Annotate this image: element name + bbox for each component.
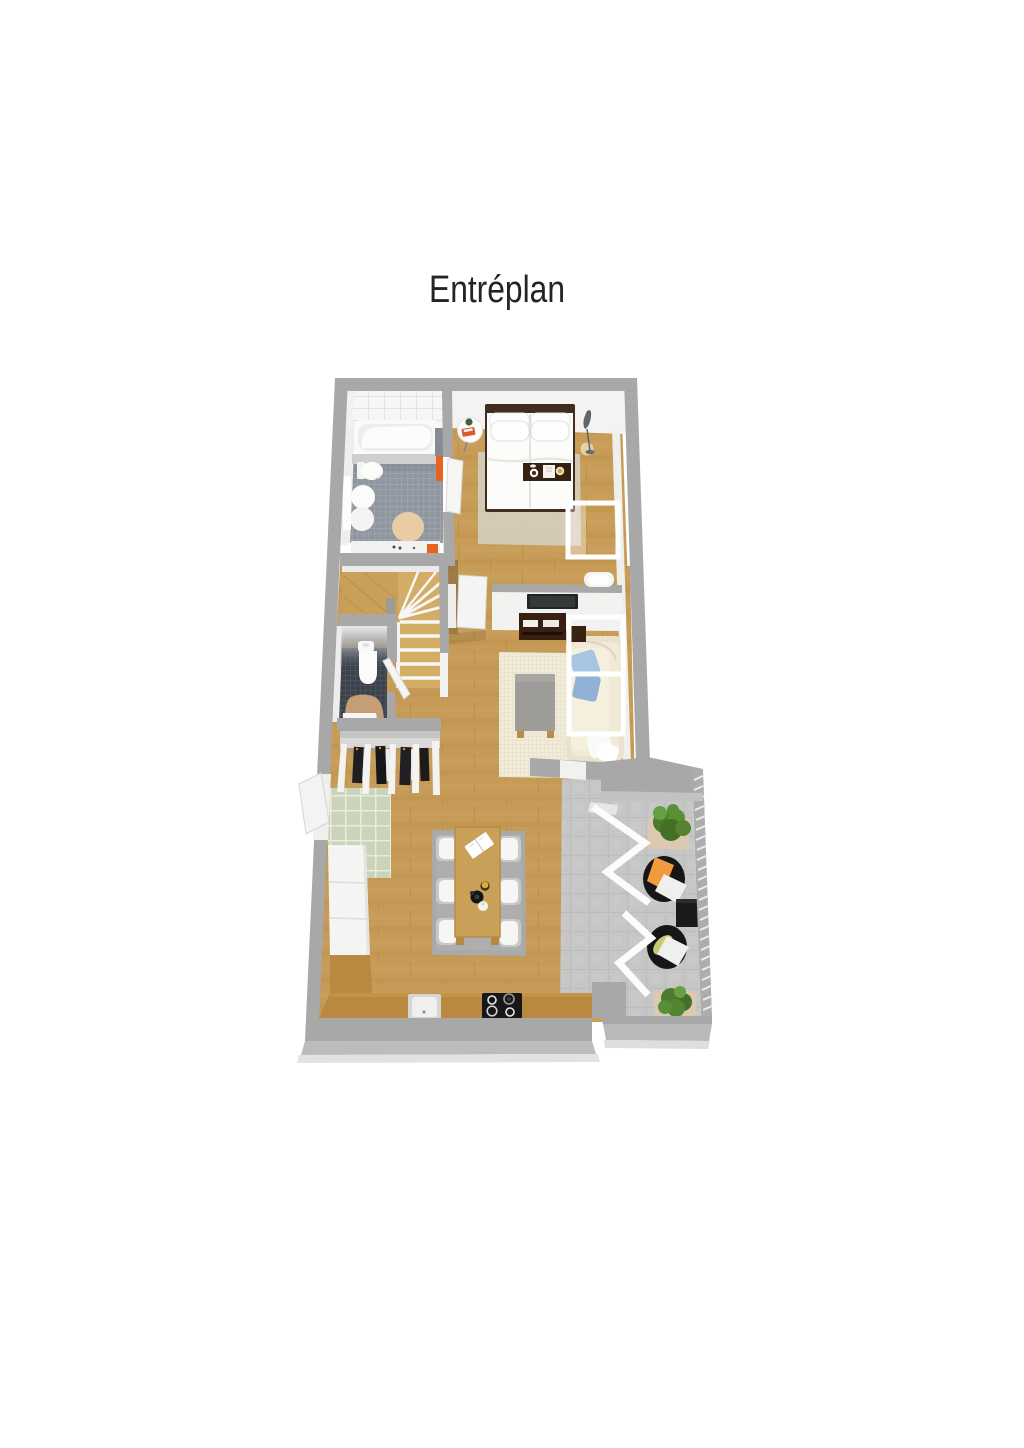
svg-text:Entréplan: Entréplan — [429, 269, 565, 311]
